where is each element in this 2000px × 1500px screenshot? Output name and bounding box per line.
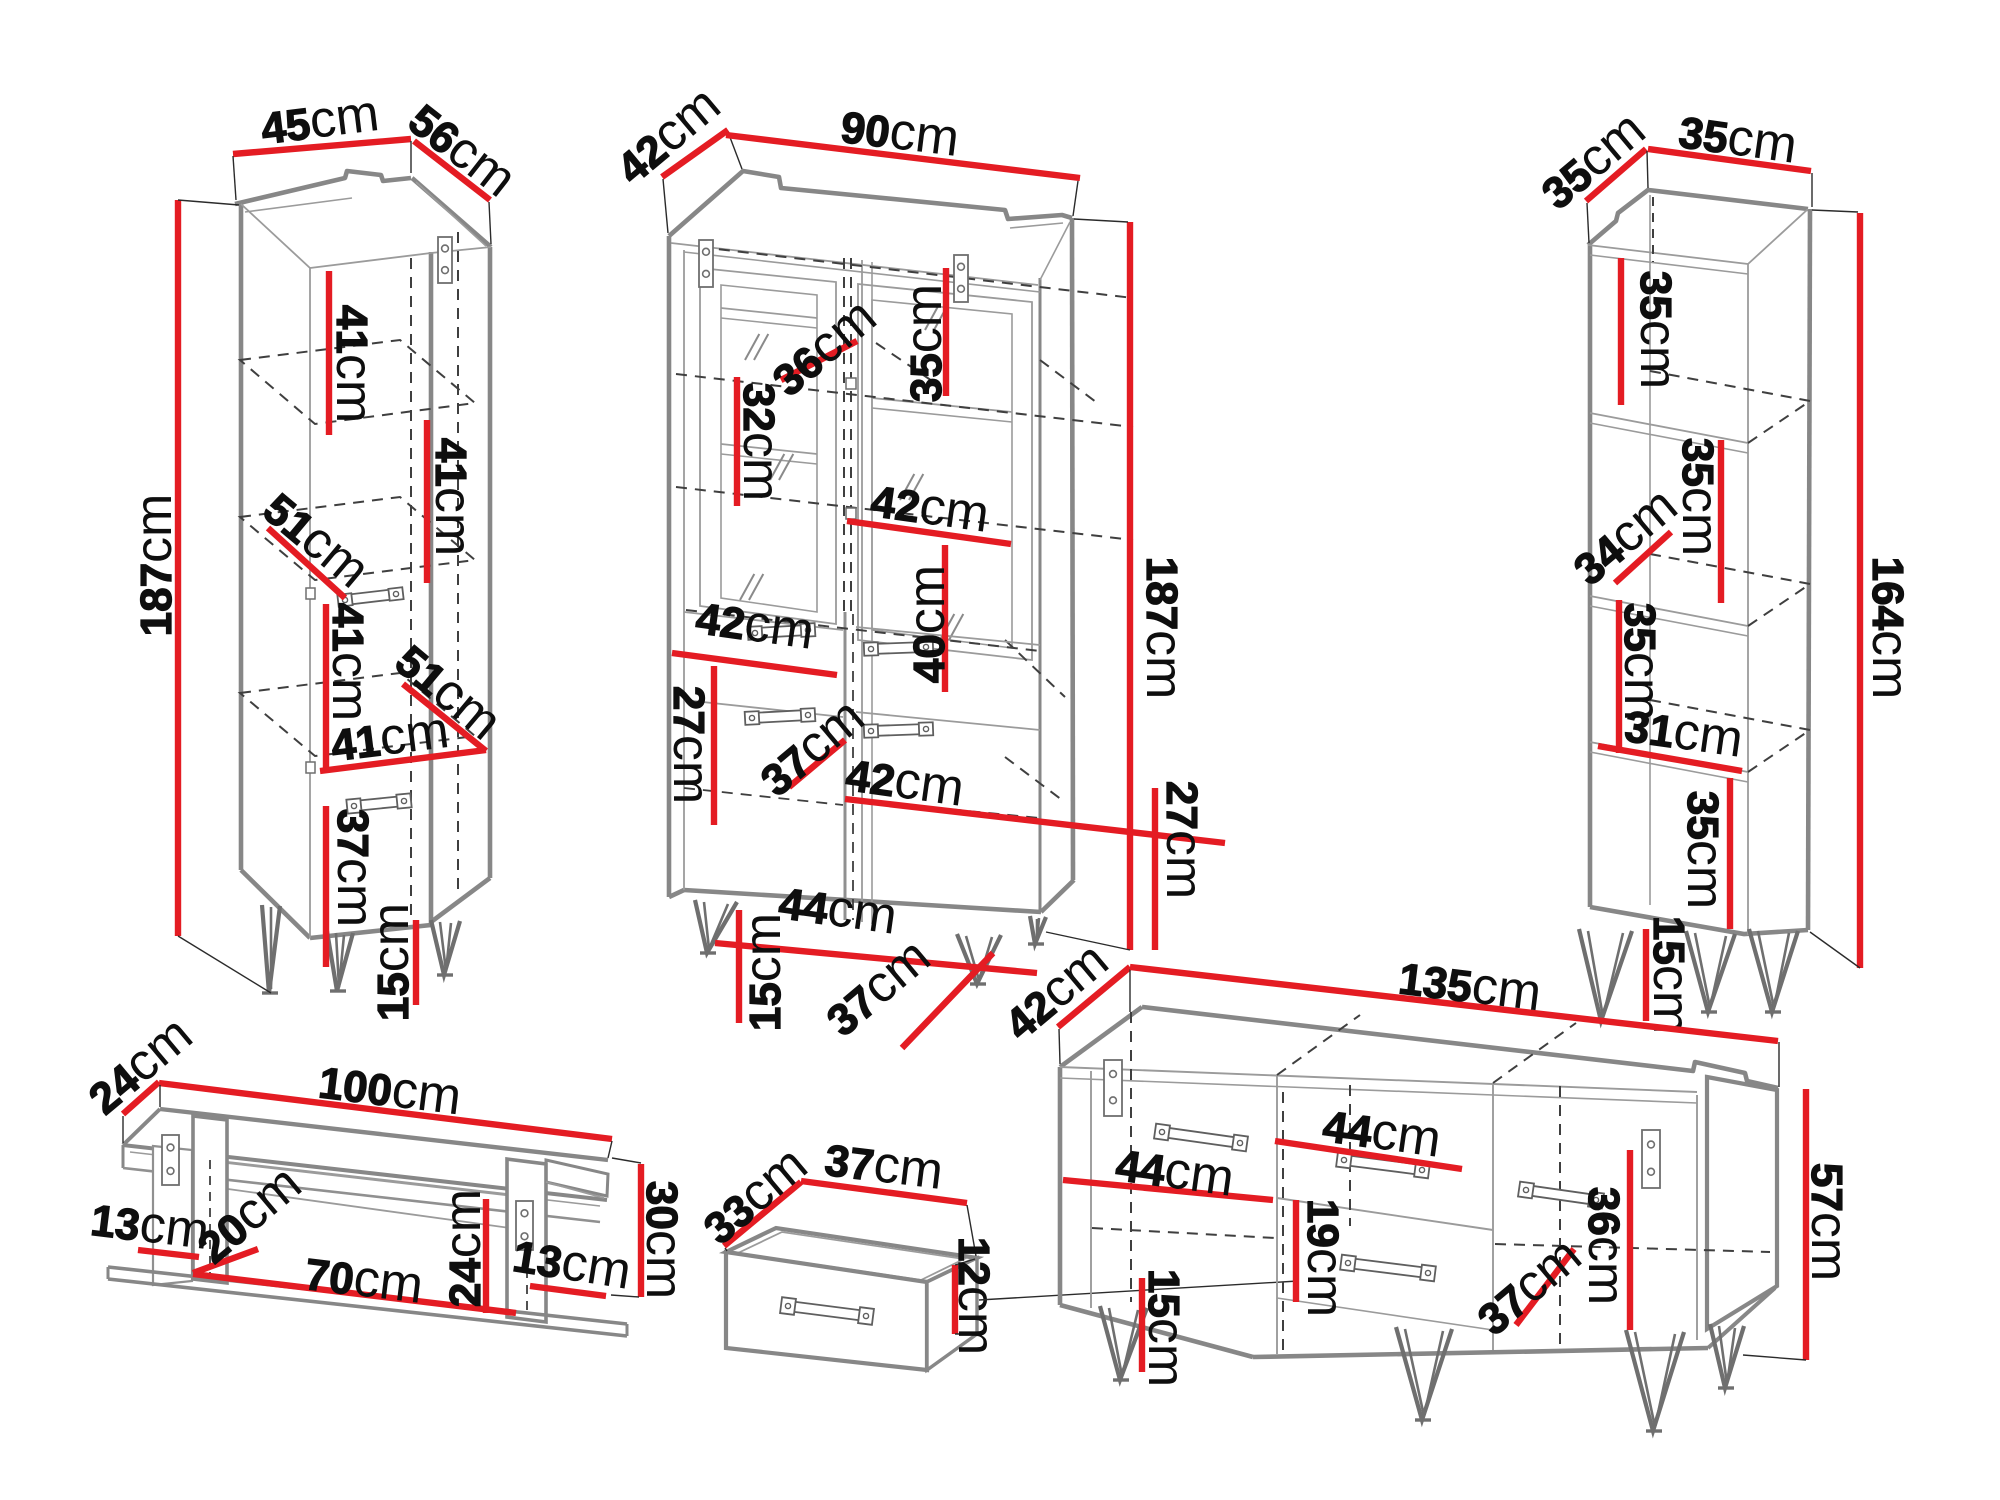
svg-text:41cm: 41cm bbox=[424, 438, 482, 556]
svg-text:27cm: 27cm bbox=[1155, 781, 1213, 899]
svg-text:36cm: 36cm bbox=[1577, 1187, 1635, 1305]
svg-text:15cm: 15cm bbox=[1137, 1269, 1195, 1387]
svg-text:57cm: 57cm bbox=[1800, 1163, 1858, 1281]
svg-text:164cm: 164cm bbox=[1861, 557, 1919, 700]
svg-text:35cm: 35cm bbox=[1676, 791, 1734, 909]
svg-text:41cm: 41cm bbox=[325, 305, 383, 423]
svg-text:35cm: 35cm bbox=[1671, 438, 1729, 556]
svg-text:15cm: 15cm bbox=[362, 903, 420, 1021]
svg-text:30cm: 30cm bbox=[635, 1181, 693, 1299]
svg-text:187cm: 187cm bbox=[1135, 557, 1193, 700]
svg-text:12cm: 12cm bbox=[947, 1237, 1005, 1355]
svg-text:187cm: 187cm bbox=[125, 494, 183, 637]
svg-text:32cm: 32cm bbox=[732, 383, 790, 501]
svg-text:35cm: 35cm bbox=[895, 284, 953, 402]
svg-text:35cm: 35cm bbox=[1629, 271, 1687, 389]
svg-text:40cm: 40cm bbox=[898, 565, 956, 683]
svg-text:19cm: 19cm bbox=[1296, 1199, 1354, 1317]
svg-text:27cm: 27cm bbox=[662, 686, 720, 804]
svg-text:15cm: 15cm bbox=[1642, 916, 1700, 1034]
svg-text:41cm: 41cm bbox=[321, 603, 379, 721]
svg-text:15cm: 15cm bbox=[734, 913, 792, 1031]
svg-text:24cm: 24cm bbox=[434, 1189, 492, 1307]
